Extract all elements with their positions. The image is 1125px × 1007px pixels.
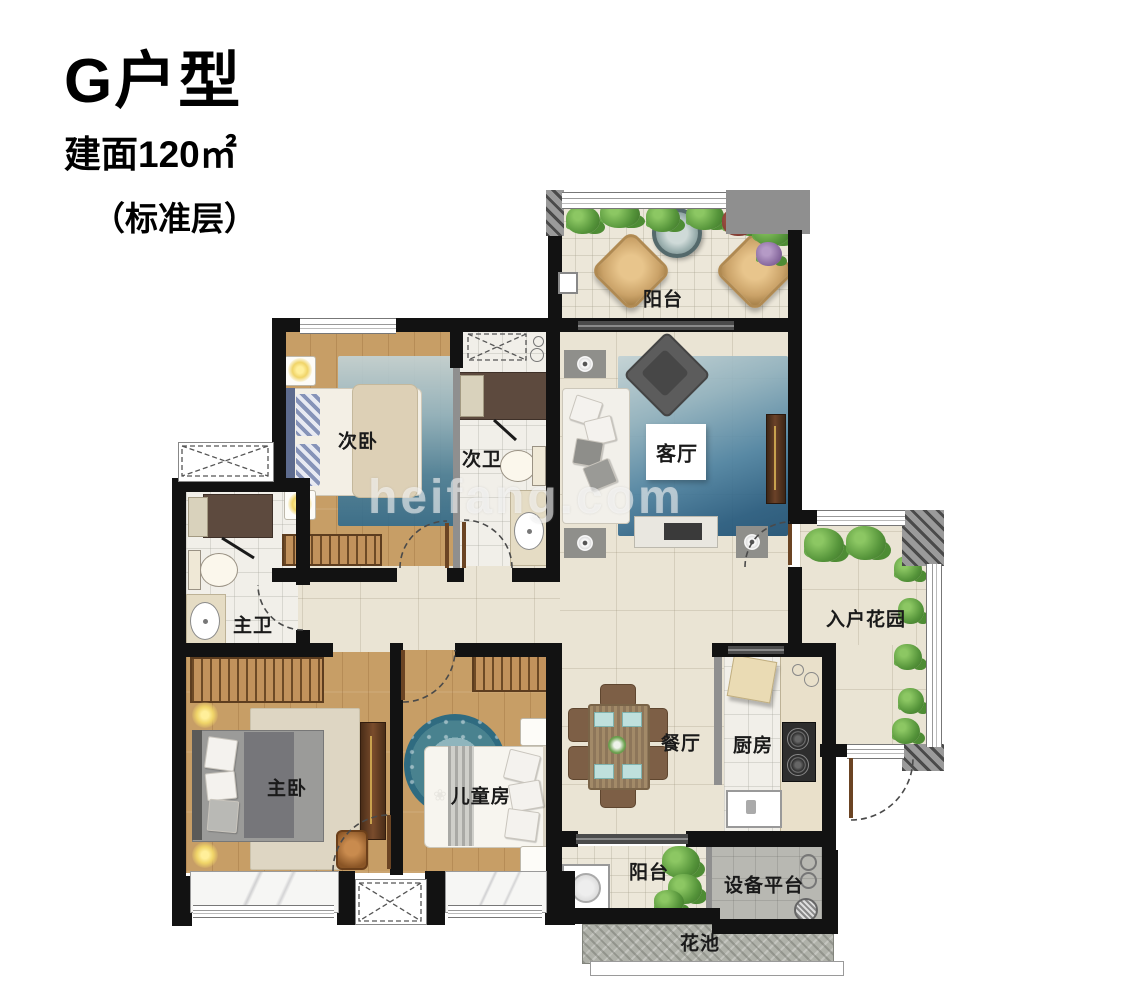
master-wardrobe: [190, 657, 324, 703]
bath2-sink-tray: [460, 375, 484, 417]
wall-dining-south: [686, 831, 836, 847]
wall-top: [394, 318, 560, 332]
wall-hatch-garden-ne: [902, 510, 944, 566]
wall-corridor-south: [186, 643, 333, 657]
kitchen-board: [727, 654, 778, 703]
place-setting: [622, 712, 642, 727]
master-dresser-handle: [370, 736, 372, 824]
kitchen-door-track: [728, 646, 784, 654]
wall-pier: [447, 568, 464, 582]
wall-equipment-east: [822, 850, 838, 934]
wall-bedroom2-left: [272, 318, 286, 492]
ac-platform-south: [355, 879, 427, 925]
plumbing-circle: [533, 336, 544, 347]
bedroom2-lamp: [288, 358, 312, 382]
wall-pier: [390, 643, 403, 702]
room-label-bedroom2: 次卧: [338, 427, 378, 454]
kids-pillow: [504, 808, 540, 842]
wall-top: [272, 318, 302, 332]
room-label-master: 主卧: [267, 774, 307, 801]
kids-pillow: [508, 779, 544, 812]
place-setting: [622, 764, 642, 779]
dining-centerpiece: [608, 736, 626, 754]
wall-balcony-right: [788, 230, 802, 332]
wall-hatch-garden-se: [902, 744, 944, 771]
window-master-south: [193, 905, 334, 918]
area-subtitle: 建面120㎡: [64, 124, 237, 178]
ceiling-speaker: [564, 528, 606, 558]
place-setting: [594, 764, 614, 779]
master-pillow: [205, 771, 238, 802]
wall-equipment-south: [712, 919, 838, 934]
washer-door: [571, 873, 601, 903]
room-label-living: 客厅: [656, 438, 698, 467]
wall-between-bedrooms: [390, 700, 403, 875]
kids-wardrobe: [472, 652, 554, 692]
plant: [566, 206, 600, 234]
ceiling-speaker: [564, 350, 606, 378]
sliding-door-balcony-bottom: [576, 834, 688, 844]
room-label-flowerbed: 花池: [680, 929, 720, 956]
balcony-utility-box: [558, 272, 578, 294]
plant: [846, 526, 886, 560]
room-label-masterbath: 主卫: [233, 611, 273, 638]
sideboard-tray: [664, 523, 702, 540]
page-title: G户型: [64, 30, 242, 120]
room-label-kids: 儿童房: [451, 782, 511, 809]
plumbing-circle: [530, 348, 544, 362]
plant: [892, 718, 920, 744]
bedroom2-pillow: [296, 394, 320, 436]
flower-bed-outline: [590, 961, 844, 976]
master-chair: [336, 830, 368, 870]
tv-screen-line: [774, 426, 776, 490]
window-kids-south: [448, 905, 542, 918]
ac-platform-west: [178, 442, 274, 482]
masterbath-basin: [190, 602, 220, 640]
tv-cabinet: [766, 414, 786, 504]
room-label-balcony-top: 阳台: [643, 285, 683, 312]
window-balcony-north: [562, 192, 726, 209]
masterbath-vanity: [203, 494, 273, 538]
plant: [894, 644, 922, 670]
wall-kitchen-east: [822, 643, 836, 850]
divider-balcony-equipment: [706, 847, 712, 910]
place-setting: [594, 712, 614, 727]
room-label-dining: 餐厅: [661, 729, 701, 756]
stove-burner: [787, 754, 809, 776]
master-lamp: [192, 842, 218, 868]
wall-pier: [425, 871, 445, 925]
wall-corridor-north: [272, 568, 397, 582]
ceiling-lamp: [736, 526, 768, 558]
wall-balcbot-south: [548, 908, 720, 924]
wall-kitchen-west: [714, 657, 722, 785]
plant: [804, 528, 844, 562]
room-label-balcony-bottom: 阳台: [629, 858, 669, 885]
equipment-vent: [800, 854, 817, 871]
room-label-bath2: 次卫: [462, 445, 502, 472]
masterbath-toilet: [200, 553, 238, 587]
wall-bedroom2-bath2: [453, 366, 460, 568]
wall-balcony-ne-block: [726, 190, 810, 234]
master-headboard: [192, 730, 202, 840]
master-pillow: [204, 736, 238, 772]
window-garden-north: [817, 510, 905, 526]
watermark: heifang.com: [368, 470, 684, 525]
room-label-kitchen: 厨房: [733, 731, 773, 758]
wall-garden-nw: [788, 510, 820, 524]
wall-living-east: [788, 318, 802, 522]
kitchen-item: [804, 672, 819, 687]
kids-room-label-group: ❀ 儿童房: [433, 782, 510, 809]
wall-living-west: [546, 318, 560, 582]
flower-icon: ❀: [433, 785, 446, 805]
floor-subtitle: （标准层）: [92, 192, 257, 240]
masterbath-sink-tray: [188, 497, 208, 537]
master-pillow: [207, 799, 240, 833]
master-dresser: [360, 722, 386, 840]
plant: [898, 688, 924, 714]
sink-faucet: [746, 800, 756, 814]
kitchen-item: [792, 664, 804, 676]
room-label-equipment: 设备平台: [724, 871, 804, 898]
window-garden-east: [926, 564, 942, 747]
wall-pier: [337, 871, 355, 925]
stove-burner: [787, 728, 809, 750]
master-lamp: [192, 702, 218, 728]
window-bedroom2-north: [300, 318, 396, 334]
floorplan-page: G户型 建面120㎡ （标准层）: [0, 0, 1125, 1007]
wall-corridor-south: [455, 643, 560, 657]
sliding-door-balcony-top: [578, 321, 734, 330]
entry-threshold: [847, 744, 904, 759]
room-label-garden: 入户花园: [826, 605, 906, 632]
wall-left-outer: [172, 478, 186, 910]
plant-purple: [756, 242, 782, 266]
wall-pier: [450, 318, 463, 368]
